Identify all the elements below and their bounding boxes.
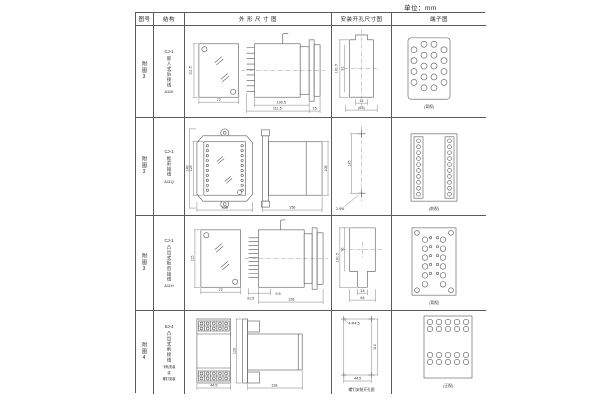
spec-table: 图号 结构 外 形 尺 寸 图 安装开孔尺寸图 端子图 附图3 CJ-1 嵌入式… bbox=[135, 12, 485, 393]
model-code: A11H bbox=[164, 284, 173, 288]
terminal-pins bbox=[417, 139, 452, 196]
model-label: CJ-1 bbox=[164, 149, 173, 154]
model-code: A11Q bbox=[164, 180, 173, 184]
mounting-diagram-row3: 101.5 76 14 64 bbox=[332, 216, 391, 310]
terminal-pins-bottom bbox=[427, 352, 468, 364]
mount-note-line1: 卡轨安装 bbox=[163, 365, 176, 369]
terminal-block-top bbox=[198, 321, 229, 331]
dim-hole-height: 112 bbox=[373, 344, 377, 350]
mounting-diagram-row1: 101.5 91 14 (64) bbox=[332, 26, 391, 117]
dim-front-width: 105 bbox=[222, 206, 228, 210]
front-view: 148 125 105 bbox=[186, 129, 253, 212]
dim-total-width: 64 bbox=[360, 296, 364, 300]
mount-type-label: 凸出式前接线 bbox=[166, 331, 172, 363]
dim-total-length: 111.5 bbox=[273, 107, 282, 111]
mounting-caption: 螺钉安装开孔图 bbox=[348, 387, 374, 392]
terminal-pins bbox=[411, 41, 447, 90]
terminal-diagram-row3: (背视) bbox=[392, 216, 486, 310]
structure-row1: CJ-1 嵌入式后接线 A11K bbox=[154, 26, 185, 118]
dim-front-height: 120 bbox=[232, 348, 236, 354]
dim-cutout-height: 101.5 bbox=[335, 64, 339, 73]
outline-cell-row2: 148 125 105 105 156 bbox=[185, 118, 332, 216]
dim-body-height: 105 bbox=[324, 165, 328, 171]
mounting-diagram-row2: 135 2-Φ6 bbox=[332, 118, 391, 215]
dim-slot-width: 14 bbox=[359, 99, 363, 103]
terminal-diagram-row4: (正视) bbox=[392, 311, 486, 394]
page: 单位：mm 图号 结构 外 形 尺 寸 图 安装开孔尺寸图 端子图 附图3 CJ… bbox=[0, 0, 600, 400]
terminal-cell-row2: (前视) bbox=[392, 118, 486, 216]
corner-screws bbox=[415, 230, 454, 292]
outline-diagram-row3: 115 72 31.5 9.5 126 bbox=[185, 216, 331, 310]
mounting-cell-row4: 4-Φ4.5 112 44.5 螺钉安装开孔图 bbox=[332, 311, 392, 394]
fig-no-row1: 附图3 bbox=[136, 26, 154, 118]
header-structure: 结构 bbox=[154, 13, 185, 26]
outline-cell-row1: 111.5 72 100.5 111.5 15 bbox=[185, 26, 332, 118]
dim-pin-length: 31.5 bbox=[247, 297, 254, 301]
terminal-view-label: (前视) bbox=[429, 206, 440, 211]
side-view: 100.5 111.5 15 bbox=[242, 33, 325, 113]
dim-body-length: 100.5 bbox=[277, 101, 286, 105]
mounting-diagram-row4: 4-Φ4.5 112 44.5 螺钉安装开孔图 bbox=[332, 311, 391, 394]
dim-front-width: 72 bbox=[217, 98, 221, 102]
front-view: 111.5 72 bbox=[188, 44, 238, 104]
dim-front-height: 111.5 bbox=[188, 66, 192, 75]
dim-hole-width: 44.5 bbox=[354, 377, 361, 381]
dim-body-length: 118 bbox=[271, 384, 277, 388]
mount-type-label: 嵌入式后接线 bbox=[166, 56, 172, 88]
dim-slot-width: 14 bbox=[360, 289, 364, 293]
mount-type-label: 板前接线 bbox=[166, 156, 172, 177]
side-view: 31.5 9.5 126 bbox=[245, 220, 328, 304]
terminal-cell-row3: (背视) bbox=[392, 216, 486, 311]
dim-rear-length: 15 bbox=[313, 107, 317, 111]
model-code: A11K bbox=[164, 90, 173, 94]
mount-note-line2: 或 bbox=[167, 371, 170, 375]
outline-cell-row4: 44.5 120 118 bbox=[185, 311, 332, 394]
dim-front-width: 44.5 bbox=[210, 384, 217, 388]
dim-body-length: 126 bbox=[288, 298, 294, 302]
outline-diagram-row2: 148 125 105 105 156 bbox=[185, 118, 331, 215]
fig-no-row4: 附图4 bbox=[136, 311, 154, 394]
dim-step-length: 9.5 bbox=[275, 292, 280, 296]
structure-row4: SJ-4 凸出式前接线 卡轨安装 或 螺钉安装 bbox=[154, 311, 185, 394]
dim-front-width: 72 bbox=[219, 288, 223, 292]
terminal-view-label: (背视) bbox=[429, 300, 440, 305]
unit-label: 单位：mm bbox=[404, 2, 437, 12]
header-mounting: 安装开孔尺寸图 bbox=[332, 13, 392, 26]
mounting-cell-row1: 101.5 91 14 (64) bbox=[332, 26, 392, 118]
dim-cutout-inner-height: 91 bbox=[341, 66, 345, 70]
header-terminal: 端子图 bbox=[392, 13, 486, 26]
outline-diagram-row4: 44.5 120 118 bbox=[185, 311, 331, 394]
side-view: 120 118 bbox=[232, 319, 302, 390]
terminal-pins-top bbox=[427, 319, 468, 331]
structure-row2: CJ-1 板前接线 A11Q bbox=[154, 118, 185, 216]
dim-front-inner-height: 125 bbox=[189, 165, 193, 171]
model-label: CJ-1 bbox=[164, 238, 173, 243]
outline-cell-row3: 115 72 31.5 9.5 126 bbox=[185, 216, 332, 311]
terminal-pins bbox=[422, 237, 446, 287]
header-outline: 外 形 尺 寸 图 bbox=[185, 13, 332, 26]
dim-total-width: (64) bbox=[358, 106, 365, 110]
model-label: CJ-1 bbox=[164, 49, 173, 54]
front-view: 115 72 bbox=[191, 230, 241, 294]
outline-diagram-row1: 111.5 72 100.5 111.5 15 bbox=[185, 26, 331, 117]
terminal-cell-row4: (正视) bbox=[392, 311, 486, 394]
fig-no-row2: 附图3 bbox=[136, 118, 154, 216]
header-fig-no: 图号 bbox=[136, 13, 154, 26]
terminal-block-bottom bbox=[198, 371, 229, 381]
dim-hole-pitch: 135 bbox=[347, 160, 351, 166]
model-label: SJ-4 bbox=[165, 324, 174, 329]
terminal-cell-row1: (背视) bbox=[392, 26, 486, 118]
mount-type-label: 凸出式板后接线 bbox=[166, 245, 172, 282]
terminal-diagram-row2: (前视) bbox=[392, 118, 486, 215]
fig-no-row3: 附图3 bbox=[136, 216, 154, 311]
hole-spec-label: 2-Φ6 bbox=[336, 207, 344, 211]
front-view: 44.5 bbox=[197, 319, 231, 390]
hole-spec-label: 4-Φ4.5 bbox=[348, 321, 359, 325]
terminal-diagram-row1: (背视) bbox=[392, 26, 486, 117]
dim-front-height: 115 bbox=[191, 256, 195, 262]
side-view: 105 156 bbox=[261, 130, 329, 212]
mount-note-line3: 螺钉安装 bbox=[163, 377, 176, 381]
mounting-cell-row2: 135 2-Φ6 bbox=[332, 118, 392, 216]
dim-cutout-inner-height: 76 bbox=[341, 248, 345, 252]
terminal-view-label: (背视) bbox=[424, 104, 435, 109]
terminal-view-label: (正视) bbox=[443, 383, 454, 388]
mounting-cell-row3: 101.5 76 14 64 bbox=[332, 216, 392, 311]
structure-row3: CJ-1 凸出式板后接线 A11H bbox=[154, 216, 185, 311]
dim-body-length: 156 bbox=[289, 206, 295, 210]
dim-cutout-height: 101.5 bbox=[335, 253, 339, 262]
